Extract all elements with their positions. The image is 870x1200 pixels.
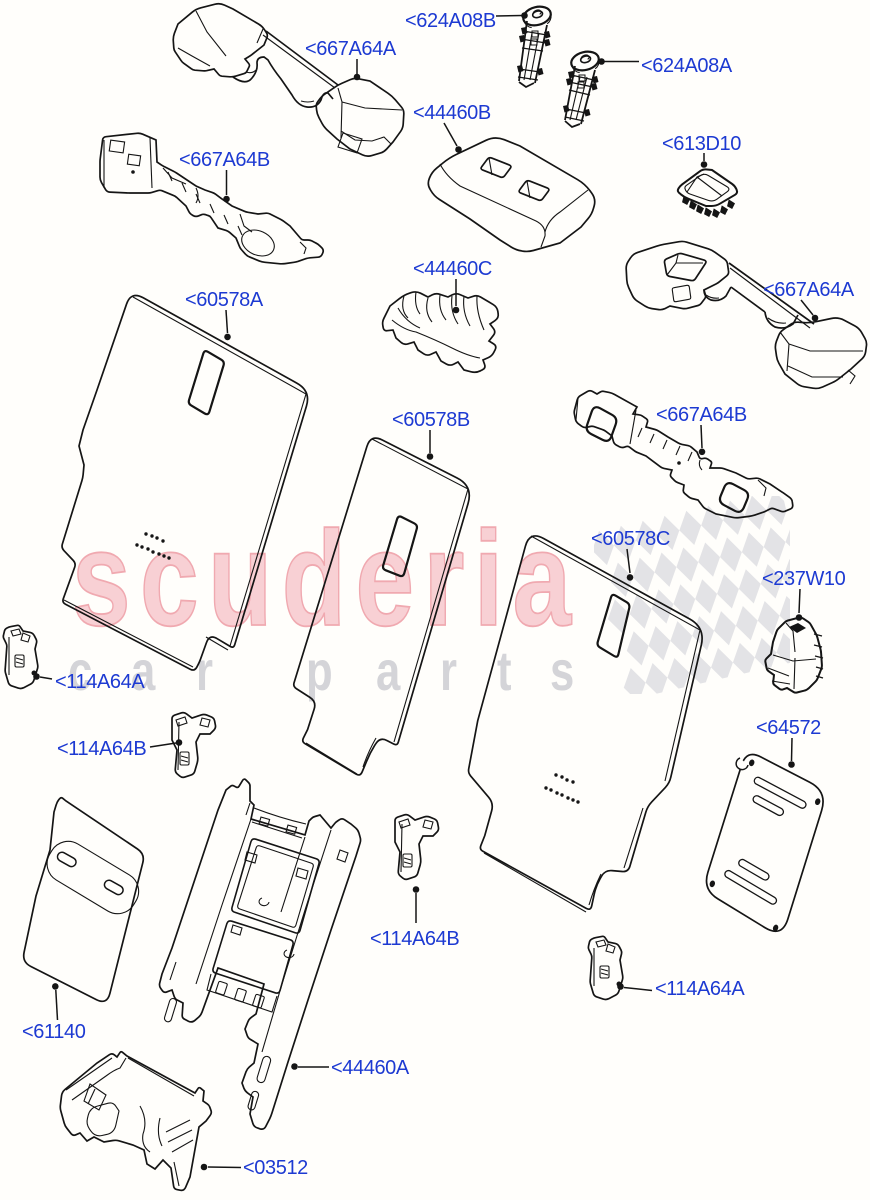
svg-text:<60578B: <60578B [392, 409, 470, 431]
svg-text:<44460A: <44460A [331, 1057, 410, 1079]
svg-text:r: r [440, 640, 457, 702]
svg-text:<237W10: <237W10 [762, 568, 846, 590]
svg-text:a: a [376, 640, 401, 702]
svg-text:<44460B: <44460B [413, 102, 491, 124]
svg-text:s: s [550, 640, 574, 702]
svg-text:<114A64A: <114A64A [55, 671, 145, 693]
svg-text:<667A64B: <667A64B [179, 149, 270, 171]
svg-text:t: t [497, 640, 512, 702]
svg-text:<613D10: <613D10 [662, 133, 741, 155]
svg-text:<667A64A: <667A64A [763, 279, 855, 301]
svg-text:<667A64B: <667A64B [656, 404, 747, 426]
svg-text:<114A64B: <114A64B [57, 738, 146, 760]
svg-text:<64572: <64572 [756, 717, 821, 739]
svg-text:<114A64A: <114A64A [655, 978, 745, 1000]
svg-text:<44460C: <44460C [413, 258, 492, 280]
svg-text:<624A08B: <624A08B [405, 10, 496, 32]
svg-text:<61140: <61140 [22, 1021, 86, 1043]
svg-text:<03512: <03512 [243, 1157, 308, 1179]
svg-text:<60578A: <60578A [185, 289, 264, 311]
svg-text:p: p [306, 640, 333, 702]
svg-text:<624A08A: <624A08A [641, 55, 733, 77]
svg-text:<667A64A: <667A64A [305, 38, 397, 60]
svg-text:<114A64B: <114A64B [370, 928, 459, 950]
svg-text:<60578C: <60578C [591, 528, 670, 550]
